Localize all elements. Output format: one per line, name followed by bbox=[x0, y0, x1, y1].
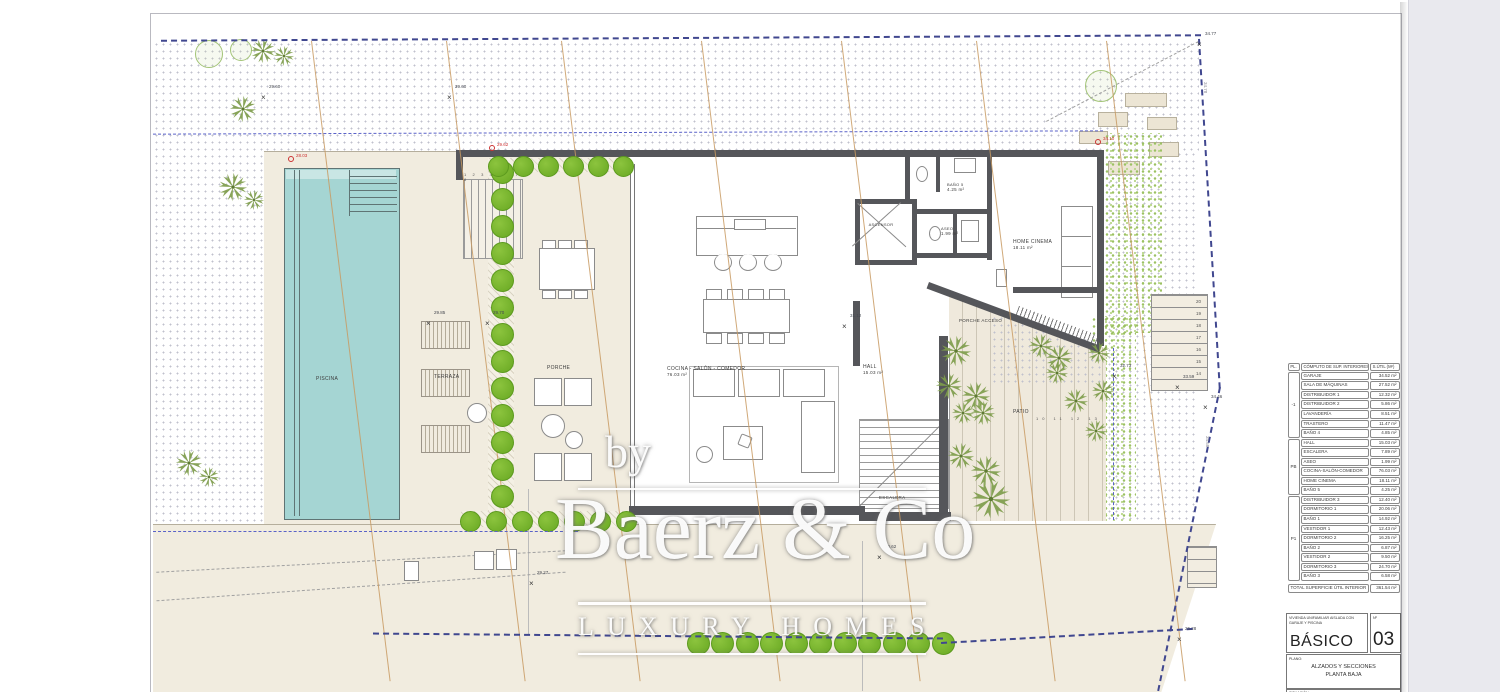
dining-table bbox=[703, 299, 790, 333]
partition bbox=[905, 150, 910, 205]
survey-marker: 29.62 bbox=[489, 145, 495, 151]
hedge-bush bbox=[491, 458, 514, 481]
room-label-porche: PORCHE bbox=[547, 365, 570, 371]
project-title: VIVIENDA UNIFAMILIAR AISLADA CON GARAJE … bbox=[1289, 616, 1363, 625]
number-label: Nº bbox=[1373, 616, 1377, 620]
room-name: ESCALERA bbox=[1301, 448, 1369, 457]
floor-level-label: PB bbox=[1288, 439, 1300, 495]
dining-chair bbox=[706, 333, 722, 344]
tree-outline bbox=[195, 40, 223, 68]
coffee-table-round bbox=[565, 431, 583, 449]
contour-line bbox=[561, 41, 641, 681]
survey-marker: ×30.62 bbox=[877, 547, 882, 565]
room-name: BAÑO 3 bbox=[1301, 572, 1369, 581]
room-label-aseo: ASEO1.99 m² bbox=[941, 226, 958, 236]
room-area: 12.43 m² bbox=[1370, 525, 1400, 534]
plano-label: PLANO: bbox=[1289, 657, 1302, 661]
dining-chair bbox=[769, 289, 785, 300]
hedge-bush bbox=[491, 242, 514, 265]
toilet bbox=[929, 226, 941, 241]
wall-bottom-living bbox=[629, 506, 865, 515]
drawing-page: 1 2 3 4 5 6 7 8 bbox=[150, 13, 1402, 692]
table-row: BAÑO 3 6.58 m² bbox=[1300, 572, 1400, 582]
hedge-bush bbox=[538, 156, 559, 177]
bar-stool bbox=[764, 254, 782, 271]
room-label-terraza: TERRAZA bbox=[434, 374, 459, 380]
survey-marker: ×29.85 bbox=[426, 313, 431, 331]
room-name: COCINA-SALÓN-COMEDOR bbox=[1301, 467, 1369, 476]
survey-marker: ×34.77 bbox=[1197, 34, 1202, 52]
table-row: VESTIDOR 2 9.50 m² bbox=[1300, 553, 1400, 563]
dining-chair bbox=[748, 289, 764, 300]
hedge-bush bbox=[590, 511, 611, 532]
room-area: 12.40 m² bbox=[1370, 496, 1400, 505]
contour-line bbox=[701, 41, 781, 681]
hedge-bush bbox=[907, 632, 930, 655]
palm-tree bbox=[1064, 389, 1088, 413]
table-row: DORMITORIO 2 16.25 m² bbox=[1300, 534, 1400, 544]
hedge-bush bbox=[491, 350, 514, 373]
pool-steps bbox=[349, 170, 397, 216]
table-row: ESCALERA 7.89 m² bbox=[1300, 448, 1400, 458]
palm-tree bbox=[1088, 342, 1110, 364]
room-name: DISTRIBUIDOR 1 bbox=[1301, 391, 1369, 400]
sink bbox=[961, 220, 979, 242]
room-label-porche-acceso: PORCHE ACCESO bbox=[959, 318, 1002, 323]
hedge-bush bbox=[538, 511, 559, 532]
partition bbox=[936, 150, 940, 192]
table-row: HOME CINEMA 18.11 m² bbox=[1300, 476, 1400, 486]
setback-line-bottom bbox=[153, 531, 578, 532]
room-name: DORMITORIO 3 bbox=[1301, 563, 1369, 572]
room-label-cocina: COCINA - SALÓN - COMEDOR76.03 m² bbox=[667, 366, 745, 377]
wall-bottom-stair bbox=[859, 512, 951, 521]
hedge-bush bbox=[613, 156, 634, 177]
planter bbox=[474, 551, 494, 570]
room-name: BAÑO 1 bbox=[1301, 515, 1369, 524]
plano-line2: PLANTA BAJA bbox=[1287, 671, 1400, 679]
hedge-bush bbox=[588, 156, 609, 177]
hedge-bush bbox=[491, 323, 514, 346]
survey-marker: ×29.27 bbox=[529, 573, 534, 591]
cinema-sofa bbox=[1061, 206, 1093, 298]
palm-tree bbox=[1085, 420, 1107, 442]
survey-marker: ×34.46 bbox=[1203, 397, 1208, 415]
stair-number: 16 bbox=[1196, 347, 1201, 352]
floor-level-label: P1 bbox=[1288, 496, 1300, 581]
planter bbox=[496, 549, 517, 570]
room-label-ascensor: ASCENSOR bbox=[857, 222, 905, 227]
room-area: 4.85 m² bbox=[1370, 429, 1400, 438]
room-label-escalera: ESCALERA bbox=[879, 495, 905, 500]
survey-marker: 28.03 bbox=[288, 156, 294, 162]
sun-lounger bbox=[421, 425, 470, 453]
room-area: 16.25 m² bbox=[1370, 534, 1400, 543]
room-name: BAÑO 2 bbox=[1301, 544, 1369, 553]
room-name: DISTRIBUIDOR 2 bbox=[1301, 400, 1369, 409]
room-area: 15.03 m² bbox=[1370, 439, 1400, 448]
side-table-round bbox=[696, 446, 713, 463]
hedge-bush bbox=[809, 632, 832, 655]
palm-tree bbox=[199, 467, 219, 487]
armchair bbox=[534, 453, 562, 481]
room-area: 20.06 m² bbox=[1370, 505, 1400, 514]
wall-hall-pillar bbox=[853, 301, 860, 366]
hedge-bush bbox=[491, 485, 514, 508]
title-box-plano: PLANO: ALZADOS Y SECCIONES PLANTA BAJA bbox=[1286, 654, 1401, 689]
room-area: 8.51 m² bbox=[1370, 410, 1400, 419]
room-area: 6.58 m² bbox=[1370, 572, 1400, 581]
patio-step-numbers: 10 11 12 13 bbox=[1036, 416, 1101, 421]
room-name: DISTRIBUIDOR 3 bbox=[1301, 496, 1369, 505]
armchair bbox=[534, 378, 562, 406]
hedge-bush bbox=[491, 431, 514, 454]
wall-cinema-bottom bbox=[1013, 287, 1101, 293]
total-label: TOTAL SUPERFICIE ÚTIL INTERIOR bbox=[1288, 584, 1369, 593]
room-area: 12.32 m² bbox=[1370, 391, 1400, 400]
room-area: 18.11 m² bbox=[1370, 477, 1400, 486]
room-label-bano5: BAÑO 54.25 m² bbox=[947, 182, 964, 192]
hedge-bush bbox=[785, 632, 808, 655]
stair-number: 19 bbox=[1196, 311, 1201, 316]
hedge-bush bbox=[564, 511, 585, 532]
partition bbox=[905, 209, 991, 214]
palm-tree bbox=[230, 96, 256, 122]
table-row: DISTRIBUIDOR 2 5.86 m² bbox=[1300, 400, 1400, 410]
room-label-patio: PATIO bbox=[1013, 409, 1029, 415]
room-area: 7.89 m² bbox=[1370, 448, 1400, 457]
room-label-piscina: PISCINA bbox=[316, 376, 338, 382]
planter bbox=[404, 561, 419, 581]
wall-right bbox=[1097, 150, 1104, 346]
survey-marker: ×32.73 bbox=[1112, 366, 1117, 384]
outdoor-chair bbox=[574, 290, 588, 299]
survey-marker: ×31.12 bbox=[842, 316, 847, 334]
stair-number: 18 bbox=[1196, 323, 1201, 328]
dining-chair bbox=[727, 289, 743, 300]
table-row: BAÑO 5 4.25 m² bbox=[1300, 486, 1400, 496]
room-name: LAVANDERÍA bbox=[1301, 410, 1369, 419]
table-row: DORMITORIO 3 24.70 m² bbox=[1300, 562, 1400, 572]
stair-number: 17 bbox=[1196, 335, 1201, 340]
room-name: TRASTERO bbox=[1301, 420, 1369, 429]
palm-tree bbox=[941, 336, 971, 366]
room-area: 9.50 m² bbox=[1370, 553, 1400, 562]
room-area: 76.03 m² bbox=[1370, 467, 1400, 476]
table-row: BAÑO 2 6.87 m² bbox=[1300, 543, 1400, 553]
room-area: 14.92 m² bbox=[1370, 515, 1400, 524]
page-shadow bbox=[1400, 2, 1408, 692]
room-name: SALA DE MÁQUINAS bbox=[1301, 381, 1369, 390]
room-area: 27.52 m² bbox=[1370, 381, 1400, 390]
table-row: LAVANDERÍA 8.51 m² bbox=[1300, 409, 1400, 419]
room-label-hall: HALL15.03 m² bbox=[863, 364, 883, 375]
title-box-phase: VIVIENDA UNIFAMILIAR AISLADA CON GARAJE … bbox=[1286, 613, 1368, 653]
room-label-home-cinema: HOME CINEMA18.11 m² bbox=[1013, 239, 1052, 250]
phase-name: BÁSICO bbox=[1290, 633, 1353, 651]
room-name: ASEO bbox=[1301, 458, 1369, 467]
total-value: 361.54 m² bbox=[1370, 584, 1400, 593]
survey-marker: 34.10 bbox=[1095, 139, 1101, 145]
room-area: 4.25 m² bbox=[1370, 486, 1400, 495]
area-table-group: P1DISTRIBUIDOR 3 12.40 m²DORMITORIO 1 20… bbox=[1287, 495, 1400, 581]
outdoor-chair bbox=[542, 240, 556, 249]
outdoor-chair bbox=[558, 240, 572, 249]
bar-stool bbox=[739, 254, 757, 271]
table-row: ASEO 1.99 m² bbox=[1300, 457, 1400, 467]
survey-marker: ×29.60 bbox=[447, 87, 452, 105]
title-block: VIVIENDA UNIFAMILIAR AISLADA CON GARAJE … bbox=[1283, 610, 1402, 692]
pool-lane-line bbox=[294, 170, 300, 516]
hedge-bush bbox=[486, 511, 507, 532]
toilet bbox=[916, 166, 928, 182]
area-table-group: -1GARAJE 34.52 m²SALA DE MÁQUINAS 27.52 … bbox=[1287, 371, 1400, 438]
survey-marker: ×29.70 bbox=[485, 313, 490, 331]
table-row: TRASTERO 11.47 m² bbox=[1300, 419, 1400, 429]
area-table: PL. CÓMPUTO DE SUP. INTERIORES S.ÚTIL (M… bbox=[1287, 362, 1400, 593]
hedge-bush bbox=[488, 156, 509, 177]
driveway-stair bbox=[1187, 546, 1217, 588]
room-name: DORMITORIO 1 bbox=[1301, 505, 1369, 514]
table-total-row: TOTAL SUPERFICIE ÚTIL INTERIOR 361.54 m² bbox=[1287, 583, 1400, 593]
room-area: 6.87 m² bbox=[1370, 544, 1400, 553]
table-row: DISTRIBUIDOR 1 12.32 m² bbox=[1300, 390, 1400, 400]
palm-tree bbox=[219, 173, 247, 201]
palm-tree bbox=[936, 373, 962, 399]
wall-top bbox=[456, 150, 1104, 157]
survey-marker: ×26.28 bbox=[1177, 629, 1182, 647]
table-row: COCINA-SALÓN-COMEDOR 76.03 m² bbox=[1300, 467, 1400, 477]
dining-chair bbox=[727, 333, 743, 344]
dining-chair bbox=[769, 333, 785, 344]
palm-tree bbox=[972, 480, 1010, 518]
armchair bbox=[564, 453, 592, 481]
palm-tree bbox=[251, 39, 275, 63]
room-name: VESTIDOR 2 bbox=[1301, 553, 1369, 562]
stair-number: 15 bbox=[1196, 359, 1201, 364]
room-name: BAÑO 5 bbox=[1301, 486, 1369, 495]
survey-marker: ×33.59 bbox=[1175, 377, 1180, 395]
coffee-table-round bbox=[541, 414, 565, 438]
hedge-bush bbox=[513, 156, 534, 177]
area-table-group: PBHALL 15.03 m²ESCALERA 7.89 m²ASEO 1.99… bbox=[1287, 438, 1400, 495]
sink bbox=[954, 158, 976, 173]
blueprint-canvas: { "watermark": { "by": "by", "brand": "B… bbox=[0, 0, 1500, 692]
stair-number: 14 bbox=[1196, 371, 1201, 376]
hedge-bush bbox=[563, 156, 584, 177]
hedge-bush bbox=[858, 632, 881, 655]
palm-tree bbox=[274, 46, 294, 66]
hedge-bush bbox=[491, 296, 514, 319]
cinema-sofa-line bbox=[1061, 266, 1091, 267]
floor-level-label: -1 bbox=[1288, 372, 1300, 438]
partition bbox=[905, 253, 991, 258]
table-row: VESTIDOR 1 12.43 m² bbox=[1300, 524, 1400, 534]
outdoor-chair bbox=[542, 290, 556, 299]
table-row: DISTRIBUIDOR 3 12.40 m² bbox=[1300, 495, 1400, 505]
hedge-bush bbox=[491, 377, 514, 400]
table-row: GARAJE 34.52 m² bbox=[1300, 371, 1400, 381]
hedge-bush bbox=[834, 632, 857, 655]
tree-outline bbox=[230, 39, 252, 61]
dining-chair bbox=[706, 289, 722, 300]
title-box-number: Nº 03 bbox=[1370, 613, 1401, 653]
cinema-sofa-line bbox=[1061, 236, 1091, 237]
room-area: 5.86 m² bbox=[1370, 400, 1400, 409]
armchair bbox=[564, 378, 592, 406]
palm-tree bbox=[1046, 362, 1068, 384]
room-area: 34.52 m² bbox=[1370, 372, 1400, 381]
hedge-bush bbox=[491, 215, 514, 238]
hedge-bush bbox=[616, 511, 637, 532]
room-name: DORMITORIO 2 bbox=[1301, 534, 1369, 543]
side-table-round bbox=[467, 403, 487, 423]
hedge-bush bbox=[883, 632, 906, 655]
glazing-living-left bbox=[630, 164, 635, 509]
hedge-bush bbox=[491, 188, 514, 211]
table-row: SALA DE MÁQUINAS 27.52 m² bbox=[1300, 381, 1400, 391]
room-name: VESTIDOR 1 bbox=[1301, 525, 1369, 534]
pool bbox=[284, 168, 400, 520]
hedge-bush bbox=[491, 404, 514, 427]
plano-line1: ALZADOS Y SECCIONES bbox=[1287, 663, 1400, 671]
palm-tree bbox=[244, 190, 264, 210]
survey-marker: ×29.60 bbox=[261, 87, 266, 105]
room-area: 24.70 m² bbox=[1370, 563, 1400, 572]
outdoor-chair bbox=[558, 290, 572, 299]
sheet-number: 03 bbox=[1373, 629, 1394, 651]
sofa-right bbox=[801, 401, 835, 473]
table-row: BAÑO 4 4.85 m² bbox=[1300, 429, 1400, 439]
palm-tree bbox=[1092, 380, 1114, 402]
hedge-bush bbox=[491, 269, 514, 292]
room-name: GARAJE bbox=[1301, 372, 1369, 381]
table-row: BAÑO 1 14.92 m² bbox=[1300, 515, 1400, 525]
table-row: HALL 15.03 m² bbox=[1300, 438, 1400, 448]
stair-number: 20 bbox=[1196, 299, 1201, 304]
room-area: 1.99 m² bbox=[1370, 458, 1400, 467]
palm-tree bbox=[971, 401, 995, 425]
right-gray-panel bbox=[1408, 0, 1500, 692]
room-name: HALL bbox=[1301, 439, 1369, 448]
dining-chair bbox=[748, 333, 764, 344]
sofa-seat bbox=[783, 369, 825, 397]
room-area: 11.47 m² bbox=[1370, 420, 1400, 429]
hedge-bush bbox=[460, 511, 481, 532]
hedge-bush bbox=[512, 511, 533, 532]
room-name: HOME CINEMA bbox=[1301, 477, 1369, 486]
room-name: BAÑO 4 bbox=[1301, 429, 1369, 438]
kitchen-sink bbox=[734, 219, 766, 230]
table-row: DORMITORIO 1 20.06 m² bbox=[1300, 505, 1400, 515]
area-table-header: PL. CÓMPUTO DE SUP. INTERIORES S.ÚTIL (M… bbox=[1287, 362, 1400, 371]
